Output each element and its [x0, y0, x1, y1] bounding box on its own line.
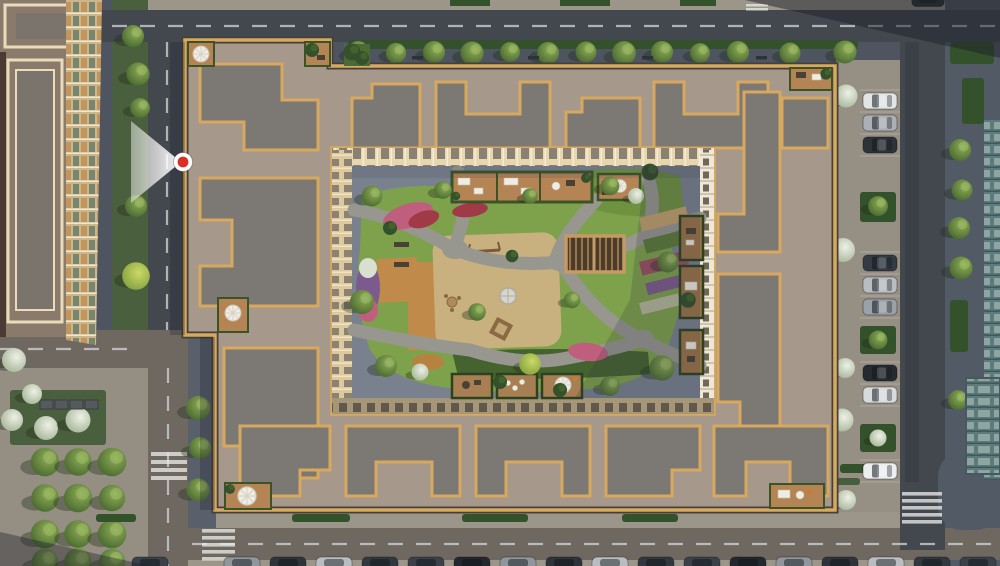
parked-car — [863, 463, 897, 479]
parked-car — [863, 93, 897, 109]
parked-car — [822, 557, 858, 566]
parked-car — [454, 557, 490, 566]
parked-car — [863, 387, 897, 403]
pergola — [566, 236, 624, 272]
facade-left-inner — [332, 150, 352, 414]
parked-car — [638, 557, 674, 566]
parked-car — [863, 277, 897, 293]
parked-car — [863, 365, 897, 381]
parked-car — [960, 557, 996, 566]
parked-car — [500, 557, 536, 566]
parked-car — [316, 557, 352, 566]
parked-car — [914, 557, 950, 566]
parked-car — [270, 557, 306, 566]
parked-car — [863, 115, 897, 131]
marker-dot — [178, 157, 189, 168]
bench — [394, 262, 409, 267]
rooftop-terrace-bottom-left — [225, 483, 271, 509]
parked-car — [684, 557, 720, 566]
neighbor-left-facade — [66, 0, 102, 345]
parked-car — [776, 557, 812, 566]
parked-car — [546, 557, 582, 566]
facade-bottom-inner — [332, 398, 714, 414]
parked-car — [408, 557, 444, 566]
bench — [394, 242, 409, 247]
facade-top-inner — [332, 148, 714, 166]
neighbor-building-left — [0, 0, 102, 345]
rooftop-terrace-left-mid — [218, 298, 248, 332]
parked-car — [863, 255, 897, 271]
rooftop-terrace-top-right — [790, 68, 832, 90]
rooftop-terrace-top-left — [188, 42, 214, 66]
parked-car — [863, 299, 897, 315]
parked-car — [730, 557, 766, 566]
parked-car — [863, 137, 897, 153]
rooftop-terrace-top-second — [305, 42, 330, 66]
masterplan-view — [0, 0, 1000, 566]
roof-garden-top — [344, 44, 370, 66]
parked-car — [224, 557, 260, 566]
neighbor-corner-building — [966, 378, 1000, 474]
parked-car — [592, 557, 628, 566]
parked-car — [868, 557, 904, 566]
parked-car — [362, 557, 398, 566]
rooftop-terrace-bottom-right — [770, 484, 824, 508]
